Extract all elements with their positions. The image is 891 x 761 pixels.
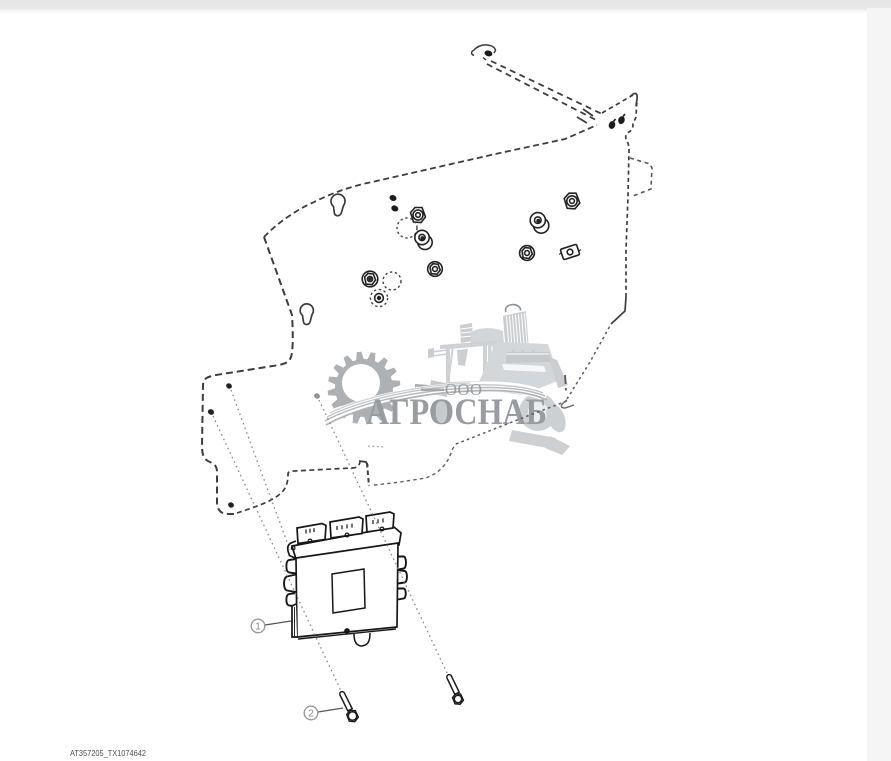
svg-text:2: 2 <box>308 709 314 720</box>
svg-text:АГРОСНАБ: АГРОСНАБ <box>366 392 547 433</box>
svg-text:AT357205_TX1074642: AT357205_TX1074642 <box>70 748 146 758</box>
svg-text:1: 1 <box>255 622 261 633</box>
